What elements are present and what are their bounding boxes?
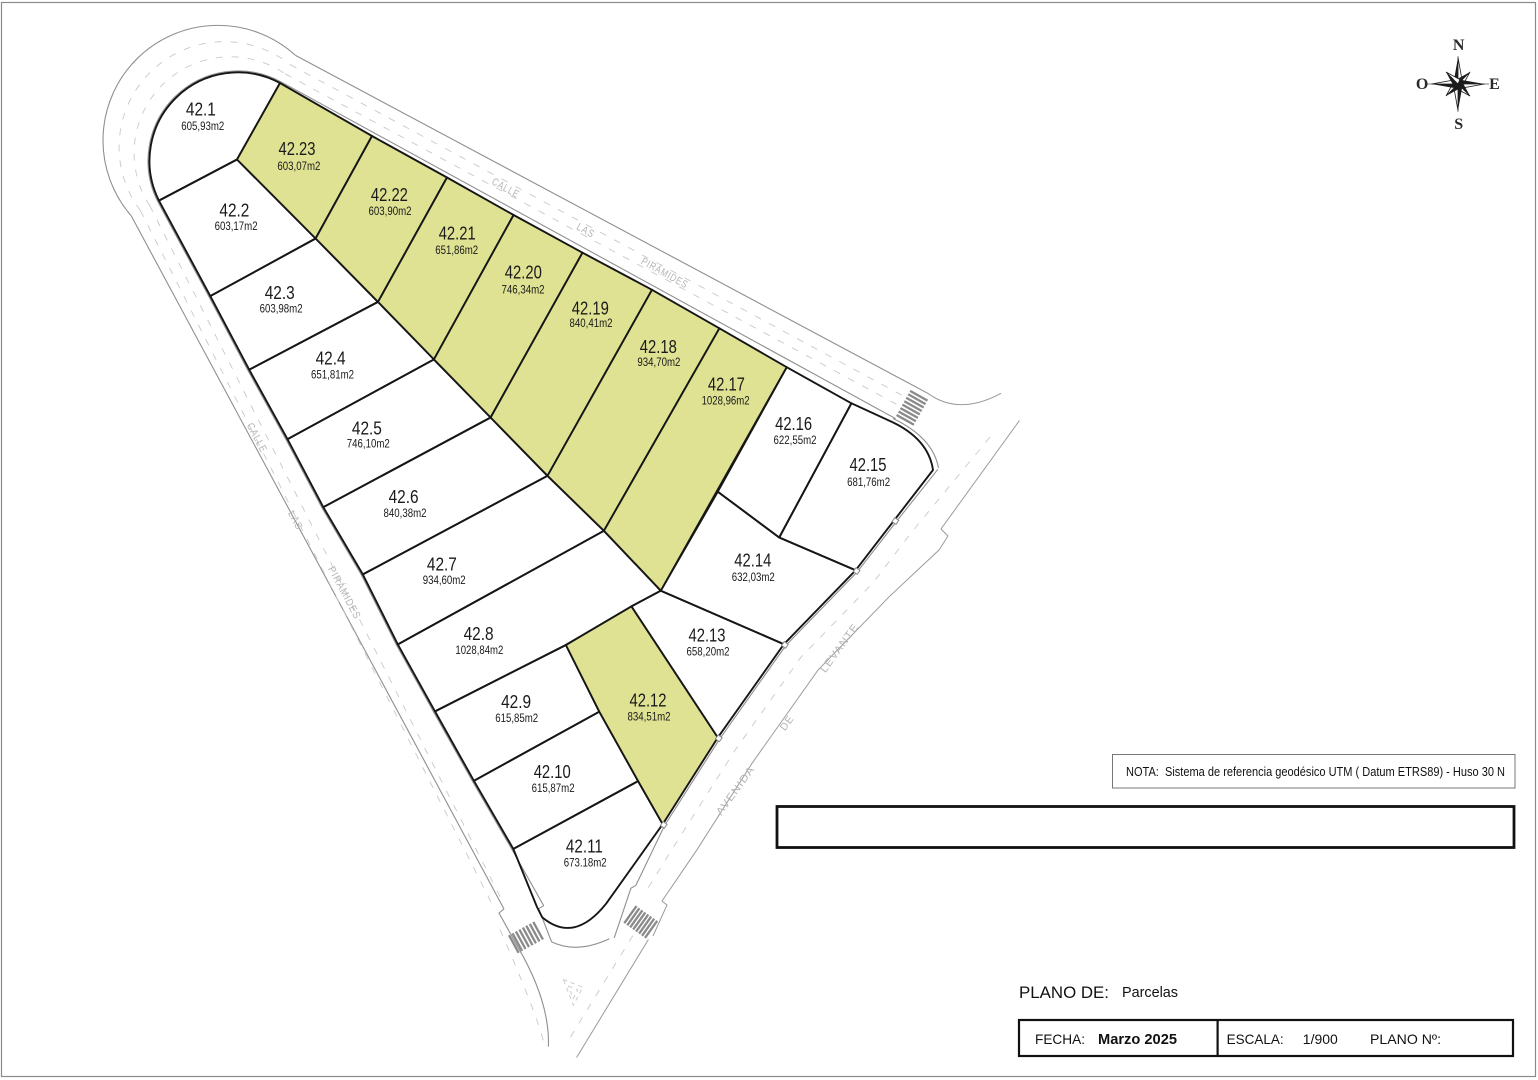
svg-text:651,81m2: 651,81m2 [311,367,354,381]
svg-text:1/900: 1/900 [1303,1031,1338,1047]
svg-text:42.5: 42.5 [352,418,382,438]
svg-text:746,34m2: 746,34m2 [502,282,545,296]
svg-text:840,38m2: 840,38m2 [384,506,427,520]
svg-text:DE: DE [778,713,797,733]
svg-text:42.4: 42.4 [316,348,346,368]
svg-text:42.6: 42.6 [389,487,419,507]
svg-text:CALLE: CALLE [489,176,521,201]
svg-text:42.21: 42.21 [439,224,476,244]
svg-text:S: S [1454,116,1463,133]
svg-text:42.22: 42.22 [371,185,408,205]
svg-text:Marzo 2025: Marzo 2025 [1098,1032,1177,1048]
svg-text:622,55m2: 622,55m2 [774,433,817,447]
svg-text:632,03m2: 632,03m2 [732,570,775,584]
svg-text:LAS: LAS [574,221,596,241]
svg-text:42.20: 42.20 [505,263,542,283]
svg-text:746,10m2: 746,10m2 [347,437,390,451]
svg-text:AVENIDA: AVENIDA [714,764,758,818]
svg-text:603,90m2: 603,90m2 [369,204,412,218]
svg-text:840,41m2: 840,41m2 [570,316,613,330]
svg-text:42.17: 42.17 [708,374,745,394]
svg-text:42.7: 42.7 [427,554,457,574]
svg-text:681,76m2: 681,76m2 [847,475,890,489]
svg-text:PIRÁMIDES: PIRÁMIDES [639,255,691,292]
svg-text:658,20m2: 658,20m2 [687,644,730,658]
svg-text:42.23: 42.23 [279,139,316,159]
svg-text:N: N [1453,37,1465,54]
svg-text:834,51m2: 834,51m2 [628,709,671,723]
svg-text:42.12: 42.12 [630,691,667,711]
svg-text:42.3: 42.3 [265,283,295,303]
svg-text:FECHA:: FECHA: [1035,1031,1085,1047]
svg-text:603,07m2: 603,07m2 [277,159,320,173]
svg-text:PLANO Nº:: PLANO Nº: [1370,1031,1441,1047]
svg-text:PLANO DE:: PLANO DE: [1019,983,1109,1002]
svg-text:NOTA: Sistema de referencia g: NOTA: Sistema de referencia geodésico UT… [1126,765,1505,779]
svg-text:651,86m2: 651,86m2 [435,243,478,257]
svg-text:42.18: 42.18 [640,337,677,357]
svg-text:615,87m2: 615,87m2 [532,781,575,795]
svg-text:673.18m2: 673.18m2 [564,855,607,869]
svg-text:42.11: 42.11 [566,836,603,856]
svg-text:42.9: 42.9 [501,692,531,712]
svg-text:603,98m2: 603,98m2 [260,301,303,315]
svg-text:O: O [1416,76,1428,93]
svg-text:1028,96m2: 1028,96m2 [702,393,750,407]
svg-text:ESCALA:: ESCALA: [1227,1031,1284,1047]
svg-text:934,60m2: 934,60m2 [423,573,466,587]
svg-text:603,17m2: 603,17m2 [215,219,258,233]
svg-text:Parcelas: Parcelas [1122,985,1178,1001]
svg-text:1028,84m2: 1028,84m2 [455,643,503,657]
svg-text:42.2: 42.2 [219,201,249,221]
svg-text:42.16: 42.16 [775,414,812,434]
svg-text:605,93m2: 605,93m2 [181,119,224,133]
svg-text:615,85m2: 615,85m2 [495,711,538,725]
svg-text:42.13: 42.13 [689,626,726,646]
svg-text:42.14: 42.14 [734,551,771,571]
svg-text:934,70m2: 934,70m2 [637,355,680,369]
svg-text:E: E [1489,76,1500,93]
svg-text:LEVANTE: LEVANTE [818,621,862,675]
svg-text:42.15: 42.15 [850,455,887,475]
svg-text:42.8: 42.8 [464,624,494,644]
svg-text:42.1: 42.1 [186,99,216,119]
svg-text:42.10: 42.10 [534,762,571,782]
svg-text:CALLE: CALLE [244,421,270,455]
